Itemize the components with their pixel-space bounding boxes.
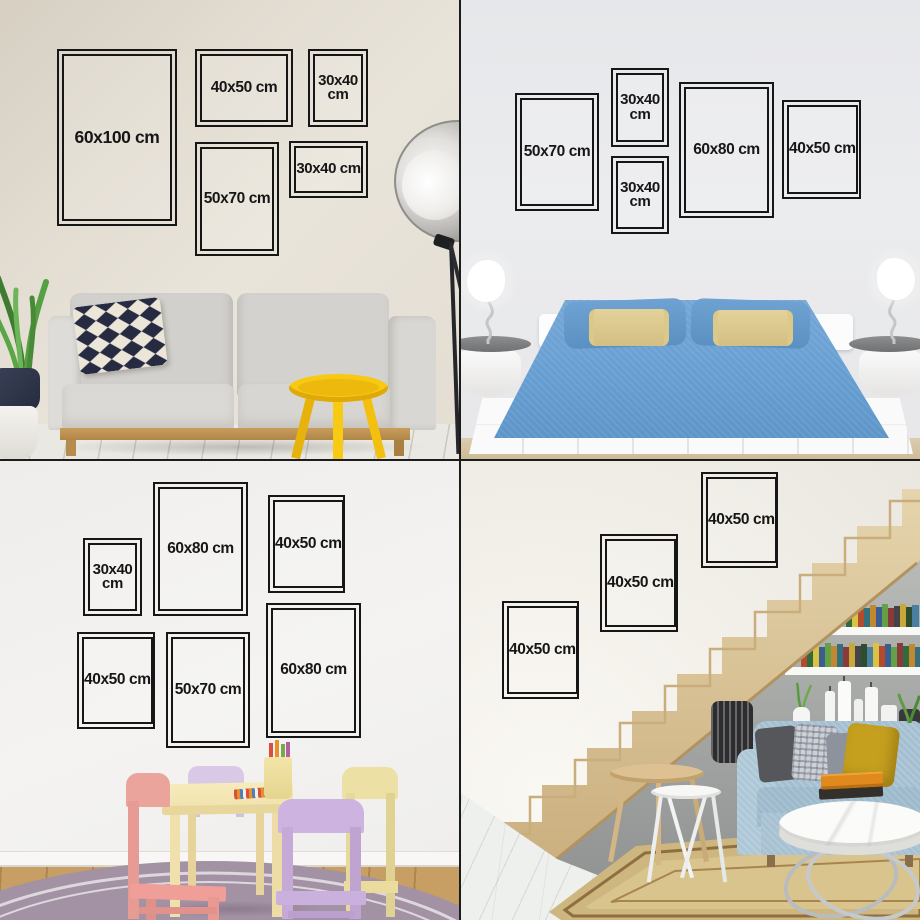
stool-top-tray xyxy=(298,379,379,396)
frame-mat: 30x40 cm xyxy=(616,161,664,229)
frame-size-label: 40x50 cm xyxy=(275,537,342,552)
frame-mat: 50x70 cm xyxy=(520,98,594,206)
frame-mat: 40x50 cm xyxy=(507,606,578,694)
frame-size-label: 40x50 cm xyxy=(211,81,278,96)
frame-mat: 50x70 cm xyxy=(171,637,245,743)
mockup-frame: 30x40 cm xyxy=(308,49,368,127)
frame-mat: 30x40 cm xyxy=(616,73,664,142)
sofa-wood-leg xyxy=(66,440,76,456)
kids-table-leg xyxy=(256,811,264,895)
frame-size-label: 60x80 cm xyxy=(693,143,760,158)
sofa-wood-base xyxy=(60,428,410,440)
nightstand-base xyxy=(859,350,920,396)
frame-size-label: 60x80 cm xyxy=(167,542,234,557)
frame-mat: 30x40 cm xyxy=(88,543,137,611)
nightstand-base xyxy=(461,350,521,396)
plant-pot-white xyxy=(0,406,38,459)
kids-table-leg xyxy=(170,813,180,917)
sofa-seat-cushion xyxy=(62,384,234,430)
mockup-frame: 50x70 cm xyxy=(166,632,250,748)
frame-mat: 40x50 cm xyxy=(200,54,288,122)
wood-side-table-top xyxy=(610,764,704,783)
frame-size-label: 30x40 cm xyxy=(618,181,662,210)
crayon-cup xyxy=(264,757,292,799)
quadrant-kids-room: 30x40 cm 60x80 cm 40x50 cm 40x50 cm 50x7… xyxy=(0,461,459,920)
mockup-frame: 40x50 cm xyxy=(502,601,579,699)
frame-mat: 60x80 cm xyxy=(158,487,243,611)
mockup-frame: 60x80 cm xyxy=(153,482,248,616)
white-side-table-top xyxy=(651,785,721,799)
mockup-frame: 40x50 cm xyxy=(782,100,861,199)
mockup-frame: 40x50 cm xyxy=(195,49,293,127)
frame-mat: 40x50 cm xyxy=(787,105,858,194)
kids-table-leg xyxy=(188,811,196,895)
frame-size-label: 40x50 cm xyxy=(84,673,151,688)
triangle-pattern-pillow xyxy=(72,297,168,375)
mockup-frame: 30x40 cm xyxy=(83,538,142,616)
mockup-frame: 40x50 cm xyxy=(701,472,778,568)
mockup-frame: 60x80 cm xyxy=(679,82,774,218)
mockup-frame: 40x50 cm xyxy=(77,632,155,729)
quadrant-living-room: 60x100 cm 40x50 cm 30x40 cm 50x70 cm 30x… xyxy=(0,0,459,459)
frame-size-label: 30x40 cm xyxy=(315,74,361,103)
mockup-frame: 40x50 cm xyxy=(268,495,345,593)
frame-mat: 30x40 cm xyxy=(294,146,363,193)
kids-chair-purple-post xyxy=(350,827,361,919)
frame-mat: 40x50 cm xyxy=(706,477,777,563)
frame-size-label: 40x50 cm xyxy=(607,576,674,591)
floor-lamp-shade-reflector xyxy=(402,150,459,220)
frame-size-label: 40x50 cm xyxy=(708,513,775,528)
frame-size-label: 50x70 cm xyxy=(524,145,591,160)
frame-mat: 60x80 cm xyxy=(684,87,769,213)
frame-size-label: 50x70 cm xyxy=(175,683,242,698)
frame-mat: 50x70 cm xyxy=(200,147,274,251)
table-lamp-bulb xyxy=(467,260,505,302)
kids-chair-pink-rail xyxy=(139,907,217,914)
frame-size-label: 50x70 cm xyxy=(204,192,271,207)
table-lamp-stem xyxy=(877,294,907,344)
sofa-wood-leg xyxy=(394,440,404,456)
sofa-armrest xyxy=(388,316,436,430)
beige-pillow xyxy=(589,309,669,346)
frame-mat: 40x50 cm xyxy=(605,539,676,627)
kids-chair-purple-post xyxy=(282,827,293,919)
mockup-frame: 60x80 cm xyxy=(266,603,361,738)
quadrant-staircase-room: 40x50 cm 40x50 cm 40x50 cm xyxy=(461,461,920,920)
kids-chair-yellow-post xyxy=(386,793,395,917)
frame-mat: 60x80 cm xyxy=(271,608,356,733)
frame-size-label: 40x50 cm xyxy=(789,142,856,157)
mockup-frame: 30x40 cm xyxy=(289,141,368,198)
beige-pillow xyxy=(713,310,793,346)
mockup-frame: 40x50 cm xyxy=(600,534,678,632)
stool-leg xyxy=(333,398,343,459)
frame-size-label: 60x100 cm xyxy=(75,129,160,146)
mockup-frame: 50x70 cm xyxy=(195,142,279,256)
kids-chair-purple-seat xyxy=(276,891,366,905)
frame-size-label: 30x40 cm xyxy=(296,162,360,176)
mockup-frame: 50x70 cm xyxy=(515,93,599,211)
frame-mat: 40x50 cm xyxy=(273,500,344,588)
coffee-table-top xyxy=(779,801,920,847)
frame-mat: 60x100 cm xyxy=(62,54,172,221)
mockup-frame: 30x40 cm xyxy=(611,156,669,234)
mockup-frame: 30x40 cm xyxy=(611,68,669,147)
frame-size-label: 30x40 cm xyxy=(90,563,135,592)
table-lamp-bulb xyxy=(877,258,915,300)
frame-mat: 40x50 cm xyxy=(82,637,153,724)
kids-chair-pink-post xyxy=(128,801,139,919)
frame-size-label: 60x80 cm xyxy=(280,663,347,678)
frame-size-label: 30x40 cm xyxy=(618,93,662,122)
frame-size-label: 40x50 cm xyxy=(509,643,576,658)
mockup-collage: 60x100 cm 40x50 cm 30x40 cm 50x70 cm 30x… xyxy=(0,0,920,920)
plant-sprig xyxy=(897,691,920,723)
mockup-frame: 60x100 cm xyxy=(57,49,177,226)
quadrant-bedroom: 50x70 cm 30x40 cm 30x40 cm 60x80 cm 40x5… xyxy=(461,0,920,459)
frame-mat: 30x40 cm xyxy=(313,54,363,122)
kids-chair-purple-rail xyxy=(288,911,354,918)
